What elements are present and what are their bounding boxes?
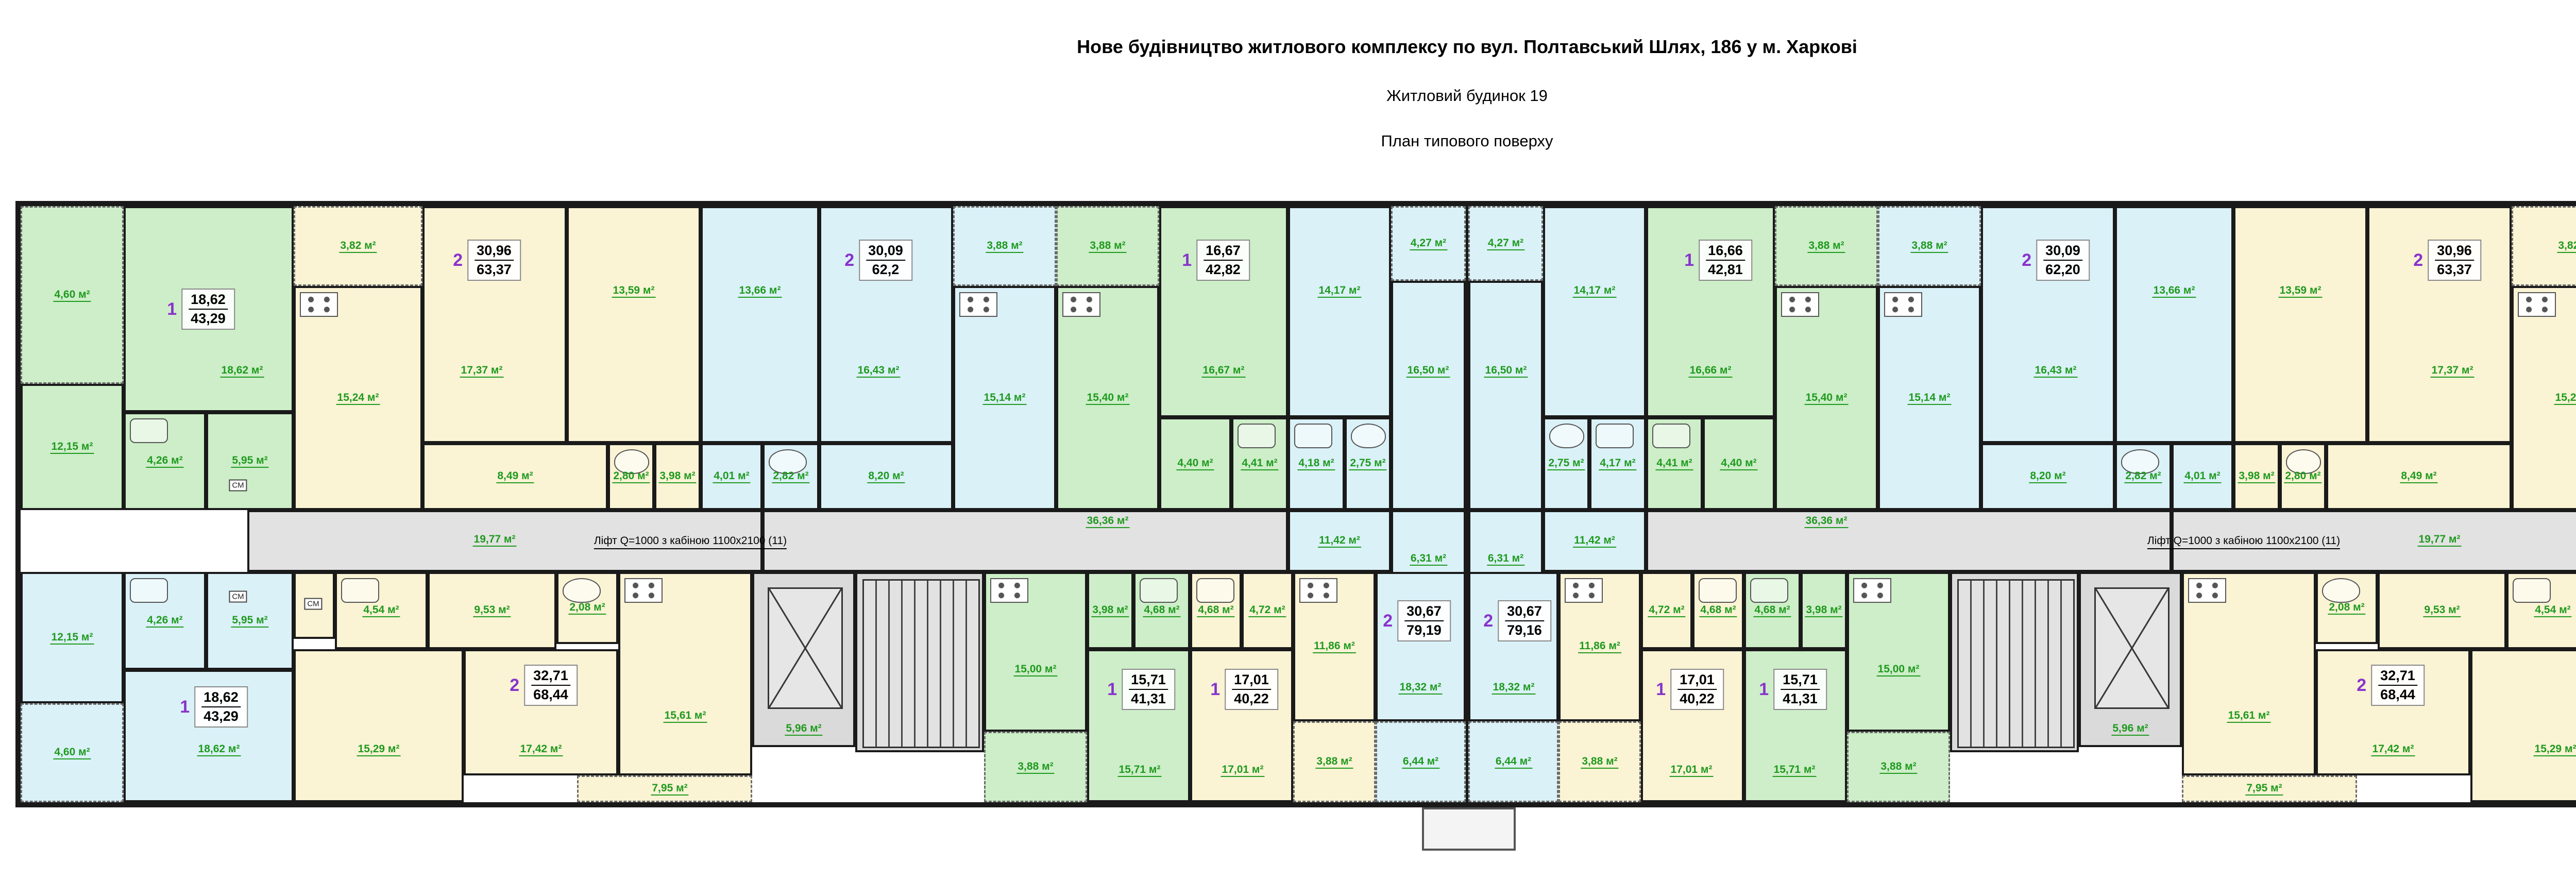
room [2115, 206, 2233, 443]
room-area-label: 14,17 м² [1318, 284, 1362, 298]
room-area-label: 6,31 м² [1487, 552, 1524, 566]
room-area-label: 4,40 м² [1176, 457, 1214, 470]
room-area-label: 7,95 м² [2245, 782, 2283, 796]
apartment-areas-box: 16,6642,81 [1699, 240, 1752, 281]
tub-icon [1699, 578, 1737, 603]
apartment-living-area: 32,71 [2378, 668, 2417, 686]
room-area-label: 17,01 м² [1670, 764, 1714, 777]
room-area-label: 2,75 м² [1349, 457, 1386, 470]
room-area-label: 3,88 м² [1016, 760, 1054, 773]
room-area-label: 3,98 м² [1805, 604, 1842, 617]
room-area-label: 4,01 м² [2183, 470, 2221, 483]
stove-icon [1884, 292, 1922, 317]
room-area-label: 11,42 м² [1573, 534, 1616, 548]
apartment-living-area: 15,71 [1781, 672, 1820, 690]
apartment-areas-box: 30,0962,2 [859, 240, 912, 281]
lift-caption: Ліфт Q=1000 з кабіною 1100х2100 (11) [2147, 535, 2340, 549]
apartment-rooms-count: 2 [453, 250, 463, 271]
room-area-label: 13,66 м² [2153, 284, 2196, 298]
stove-icon [959, 292, 997, 317]
stove-icon [1781, 292, 1819, 317]
room-area-label: 19,77 м² [2418, 533, 2462, 547]
tub-icon [1238, 424, 1276, 448]
room [1159, 206, 1288, 417]
tub-icon [130, 578, 168, 603]
apartment-areas-box: 15,7141,31 [1122, 669, 1175, 710]
stairs-icon [1957, 579, 2075, 748]
room-area-label: 12,15 м² [50, 440, 94, 453]
room-area-label: 4,40 м² [1720, 457, 1757, 470]
apartment-living-area: 17,01 [1232, 672, 1271, 690]
apartment-total-area: 63,37 [2435, 261, 2474, 278]
apartment-summary: 115,7141,31 [1107, 669, 1175, 710]
room-area-label: 15,00 м² [1877, 663, 1921, 677]
apartment-total-area: 40,22 [1677, 690, 1717, 707]
room [294, 649, 464, 802]
room [1391, 281, 1466, 510]
apartment-areas-box: 32,7168,44 [2371, 665, 2425, 706]
room [1646, 206, 1775, 417]
room-area-label: 8,49 м² [2400, 470, 2437, 483]
room [1376, 572, 1466, 721]
room-area-label: 2,82 м² [2124, 470, 2162, 483]
room-area-label: 2,08 м² [568, 601, 606, 615]
room-area-label: 5,95 м² [231, 614, 268, 628]
room-area-label: 4,60 м² [53, 288, 91, 301]
apartment-areas-box: 18,6243,29 [181, 289, 235, 330]
room-area-label: 4,17 м² [1599, 457, 1636, 470]
stove-icon [1299, 578, 1337, 603]
room [1468, 281, 1543, 510]
room-area-label: 14,17 м² [1573, 284, 1617, 298]
room-area-label: 4,68 м² [1143, 604, 1180, 617]
room-area-label: 6,44 м² [1495, 755, 1532, 768]
apartment-summary: 117,0140,22 [1656, 669, 1724, 710]
apartment-summary: 116,6642,81 [1684, 240, 1752, 281]
room-area-label: 4,26 м² [146, 454, 183, 468]
stairs-icon [862, 579, 980, 748]
room-area-label: 17,42 м² [519, 743, 563, 756]
room-area-label: 17,42 м² [2371, 743, 2415, 756]
lift-caption: Ліфт Q=1000 з кабіною 1100х2100 (11) [594, 535, 787, 549]
washing-machine-tag: СМ [304, 598, 322, 610]
apartment-rooms-count: 2 [1383, 611, 1393, 631]
room-area-label: 16,43 м² [2034, 364, 2078, 378]
room-area-label: 3,98 м² [658, 470, 696, 483]
apartment-total-area: 41,31 [1781, 690, 1820, 707]
room-area-label: 15,40 м² [1086, 391, 1130, 404]
apartment-rooms-count: 1 [1656, 680, 1666, 700]
apartment-living-area: 30,67 [1404, 603, 1444, 621]
room-area-label: 9,53 м² [473, 604, 511, 617]
stove-icon [1062, 292, 1100, 317]
apartment-summary: 115,7141,31 [1759, 669, 1827, 710]
apartment-living-area: 16,67 [1204, 243, 1243, 261]
apartment-total-area: 42,81 [1706, 261, 1745, 278]
room-area-label: 15,61 м² [664, 709, 707, 723]
stove-icon [300, 292, 338, 317]
apartment-summary: 117,0140,22 [1210, 669, 1278, 710]
room-area-label: 8,20 м² [2029, 470, 2066, 483]
wc-icon [1549, 424, 1584, 448]
apartment-living-area: 30,09 [866, 243, 905, 261]
apartment-summary: 230,6779,16 [1483, 600, 1551, 641]
apartment-areas-box: 30,9663,37 [467, 240, 521, 281]
room [1468, 572, 1558, 721]
room-area-label: 4,60 м² [53, 746, 91, 759]
room-area-label: 4,41 м² [1655, 457, 1693, 470]
room-area-label: 16,50 м² [1406, 364, 1450, 378]
room-area-label: 15,24 м² [2554, 391, 2576, 404]
room-area-label: 4,72 м² [1648, 604, 1685, 617]
apartment-total-area: 41,31 [1129, 690, 1168, 707]
apartment-living-area: 15,71 [1129, 672, 1168, 690]
room-area-label: 16,50 м² [1484, 364, 1528, 378]
room-area-label: 3,88 м² [986, 239, 1023, 252]
room-area-label: 4,68 м² [1753, 604, 1791, 617]
room-area-label: 16,66 м² [1689, 364, 1733, 378]
tub-icon [1750, 578, 1788, 603]
room-area-label: 18,32 м² [1399, 681, 1443, 695]
apartment-total-area: 62,2 [866, 261, 905, 278]
apartment-living-area: 30,09 [2043, 243, 2082, 261]
room-area-label: 2,08 м² [2328, 601, 2365, 615]
stove-icon [624, 578, 663, 603]
apartment-total-area: 62,20 [2043, 261, 2082, 278]
room [701, 206, 819, 443]
apartment-living-area: 30,67 [1505, 603, 1544, 621]
room-area-label: 15,24 м² [336, 391, 380, 404]
room-area-label: 3,88 м² [1879, 760, 1917, 773]
apartment-rooms-count: 1 [167, 299, 177, 319]
apartment-summary: 230,9663,37 [453, 240, 521, 281]
room-area-label: 4,41 м² [1241, 457, 1278, 470]
room-area-label: 2,80 м² [2284, 470, 2321, 483]
apartment-total-area: 40,22 [1232, 690, 1271, 707]
stove-icon [2518, 292, 2556, 317]
washing-machine-tag: СМ [229, 591, 247, 603]
washing-machine-tag: СМ [229, 480, 247, 492]
apartment-summary: 118,6243,29 [167, 289, 235, 330]
stove-icon [1565, 578, 1603, 603]
apartment-living-area: 32,71 [531, 668, 570, 686]
apartment-total-area: 42,82 [1204, 261, 1243, 278]
room-area-label: 3,98 м² [2238, 470, 2275, 483]
room-area-label: 15,00 м² [1014, 663, 1058, 677]
room-area-label: 15,40 м² [1805, 391, 1849, 404]
apartment-living-area: 18,62 [189, 292, 228, 310]
room-area-label: 15,71 м² [1773, 764, 1817, 777]
room [2233, 206, 2367, 443]
tub-icon [1652, 424, 1690, 448]
room-area-label: 15,14 м² [983, 391, 1027, 404]
room-area-label: 3,82 м² [2557, 239, 2576, 252]
apartment-areas-box: 17,0140,22 [1670, 669, 1724, 710]
tub-icon [130, 418, 168, 443]
room-area-label: 13,66 м² [738, 284, 782, 298]
room-area-label: 17,37 м² [2431, 364, 2475, 378]
apartment-total-area: 79,16 [1505, 621, 1544, 638]
room-area-label: 13,59 м² [2279, 284, 2323, 298]
apartment-rooms-count: 1 [1684, 250, 1694, 271]
apartment-living-area: 16,66 [1706, 243, 1745, 261]
apartment-areas-box: 17,0140,22 [1225, 669, 1278, 710]
apartment-rooms-count: 1 [1182, 250, 1192, 271]
room-area-label: 15,61 м² [2227, 709, 2271, 723]
room-area-label: 16,43 м² [857, 364, 901, 378]
apartment-summary: 232,7168,44 [510, 665, 578, 706]
room-area-label: 2,82 м² [772, 470, 809, 483]
room-area-label: 36,36 м² [1086, 515, 1130, 528]
apartment-rooms-count: 1 [1759, 680, 1769, 700]
room-area-label: 11,86 м² [1313, 640, 1356, 653]
apartment-total-area: 43,29 [189, 310, 228, 327]
apartment-summary: 230,9663,37 [2413, 240, 2481, 281]
room-area-label: 15,29 м² [357, 743, 401, 756]
room-area-label: 4,72 м² [1248, 604, 1286, 617]
room-area-label: 19,77 м² [473, 533, 517, 547]
room-area-label: 4,18 м² [1297, 457, 1335, 470]
room-area-label: 4,26 м² [146, 614, 183, 628]
apartment-rooms-count: 2 [2022, 250, 2031, 271]
room-area-label: 3,88 м² [1089, 239, 1126, 252]
apartment-rooms-count: 2 [2413, 250, 2423, 271]
room-area-label: 9,53 м² [2423, 604, 2461, 617]
entrance-porch [1422, 807, 1516, 851]
room-area-label: 5,96 м² [785, 722, 822, 736]
room-area-label: 18,62 м² [221, 364, 264, 378]
apartment-summary: 230,6779,19 [1383, 600, 1451, 641]
tub-icon [2513, 578, 2551, 603]
room-area-label: 2,75 м² [1547, 457, 1585, 470]
apartment-rooms-count: 2 [510, 675, 519, 696]
apartment-rooms-count: 1 [1210, 680, 1220, 700]
apartment-summary: 230,0962,2 [844, 240, 912, 281]
apartment-total-area: 79,19 [1404, 621, 1444, 638]
room [1543, 206, 1646, 417]
apartment-areas-box: 18,6243,29 [194, 686, 248, 728]
apartment-summary: 118,6243,29 [180, 686, 248, 728]
tub-icon [1196, 578, 1234, 603]
tub-icon [1596, 424, 1634, 448]
corridor [1646, 510, 2172, 572]
room-area-label: 18,32 м² [1492, 681, 1536, 695]
room-area-label: 5,95 м² [231, 454, 268, 468]
room-area-label: 4,27 м² [1487, 236, 1524, 250]
apartment-areas-box: 30,6779,19 [1397, 600, 1451, 641]
room [1288, 206, 1391, 417]
room-area-label: 36,36 м² [1805, 515, 1849, 528]
room-area-label: 15,29 м² [2534, 743, 2576, 756]
stove-icon [2188, 578, 2226, 603]
room-area-label: 17,01 м² [1221, 764, 1265, 777]
apartment-areas-box: 15,7141,31 [1773, 669, 1827, 710]
stove-icon [990, 578, 1028, 603]
apartment-living-area: 18,62 [201, 689, 241, 707]
apartment-areas-box: 32,7168,44 [524, 665, 578, 706]
apartment-summary: 116,6742,82 [1182, 240, 1250, 281]
room-area-label: 3,98 м² [1091, 604, 1129, 617]
room-area-label: 11,42 м² [1318, 534, 1361, 548]
room-area-label: 17,37 м² [460, 364, 504, 378]
tub-icon [1294, 424, 1332, 448]
room-area-label: 4,54 м² [362, 604, 400, 617]
room-area-label: 3,82 м² [339, 239, 377, 252]
room-area-label: 11,86 м² [1578, 640, 1621, 653]
apartment-rooms-count: 2 [844, 250, 854, 271]
room-area-label: 6,31 м² [1410, 552, 1447, 566]
room-area-label: 15,14 м² [1908, 391, 1952, 404]
room-area-label: 16,67 м² [1202, 364, 1246, 378]
room-area-label: 3,88 м² [1910, 239, 1948, 252]
room-area-label: 6,44 м² [1402, 755, 1439, 768]
room-area-label: 8,49 м² [496, 470, 534, 483]
apartment-areas-box: 16,6742,82 [1196, 240, 1250, 281]
room-area-label: 3,88 м² [1315, 755, 1353, 768]
room-area-label: 15,71 м² [1118, 764, 1162, 777]
wc-icon [1351, 424, 1386, 448]
room [2470, 649, 2576, 802]
room-area-label: 13,59 м² [612, 284, 656, 298]
room-area-label: 8,20 м² [867, 470, 905, 483]
apartment-total-area: 68,44 [2378, 686, 2417, 703]
apartment-living-area: 17,01 [1677, 672, 1717, 690]
apartment-rooms-count: 2 [2357, 675, 2366, 696]
room-area-label: 3,88 м² [1807, 239, 1845, 252]
room-area-label: 12,15 м² [50, 631, 94, 644]
tub-icon [1140, 578, 1178, 603]
apartment-summary: 230,0962,20 [2022, 240, 2090, 281]
apartment-rooms-count: 1 [1107, 680, 1117, 700]
apartment-total-area: 63,37 [474, 261, 514, 278]
room-area-label: 4,68 м² [1197, 604, 1234, 617]
apartment-living-area: 30,96 [2435, 243, 2474, 261]
lift-cabin-icon [768, 587, 843, 709]
apartment-areas-box: 30,6779,16 [1498, 600, 1551, 641]
wc-icon [2322, 578, 2360, 603]
room-area-label: 4,54 м² [2534, 604, 2571, 617]
apartment-rooms-count: 2 [1483, 611, 1493, 631]
apartment-areas-box: 30,0962,20 [2036, 240, 2090, 281]
room-area-label: 3,88 м² [1581, 755, 1618, 768]
apartment-areas-box: 30,9663,37 [2428, 240, 2481, 281]
room-area-label: 5,96 м² [2111, 722, 2149, 736]
room-area-label: 4,68 м² [1699, 604, 1737, 617]
apartment-total-area: 43,29 [201, 707, 241, 724]
floor-plan: 4,60 м²4,60 м²12,15 м²12,15 м²18,62 м²18… [0, 0, 2576, 896]
corridor [762, 510, 1288, 572]
stove-icon [1853, 578, 1891, 603]
apartment-summary: 232,7168,44 [2357, 665, 2425, 706]
room-area-label: 4,27 м² [1410, 236, 1447, 250]
room-area-label: 2,80 м² [612, 470, 650, 483]
apartment-living-area: 30,96 [474, 243, 514, 261]
apartment-total-area: 68,44 [531, 686, 570, 703]
wc-icon [563, 578, 601, 603]
room [567, 206, 701, 443]
apartment-rooms-count: 1 [180, 697, 190, 717]
room-area-label: 18,62 м² [197, 743, 241, 756]
tub-icon [341, 578, 379, 603]
room-area-label: 7,95 м² [651, 782, 688, 796]
lift-cabin-icon [2094, 587, 2170, 709]
room-area-label: 4,01 м² [713, 470, 750, 483]
